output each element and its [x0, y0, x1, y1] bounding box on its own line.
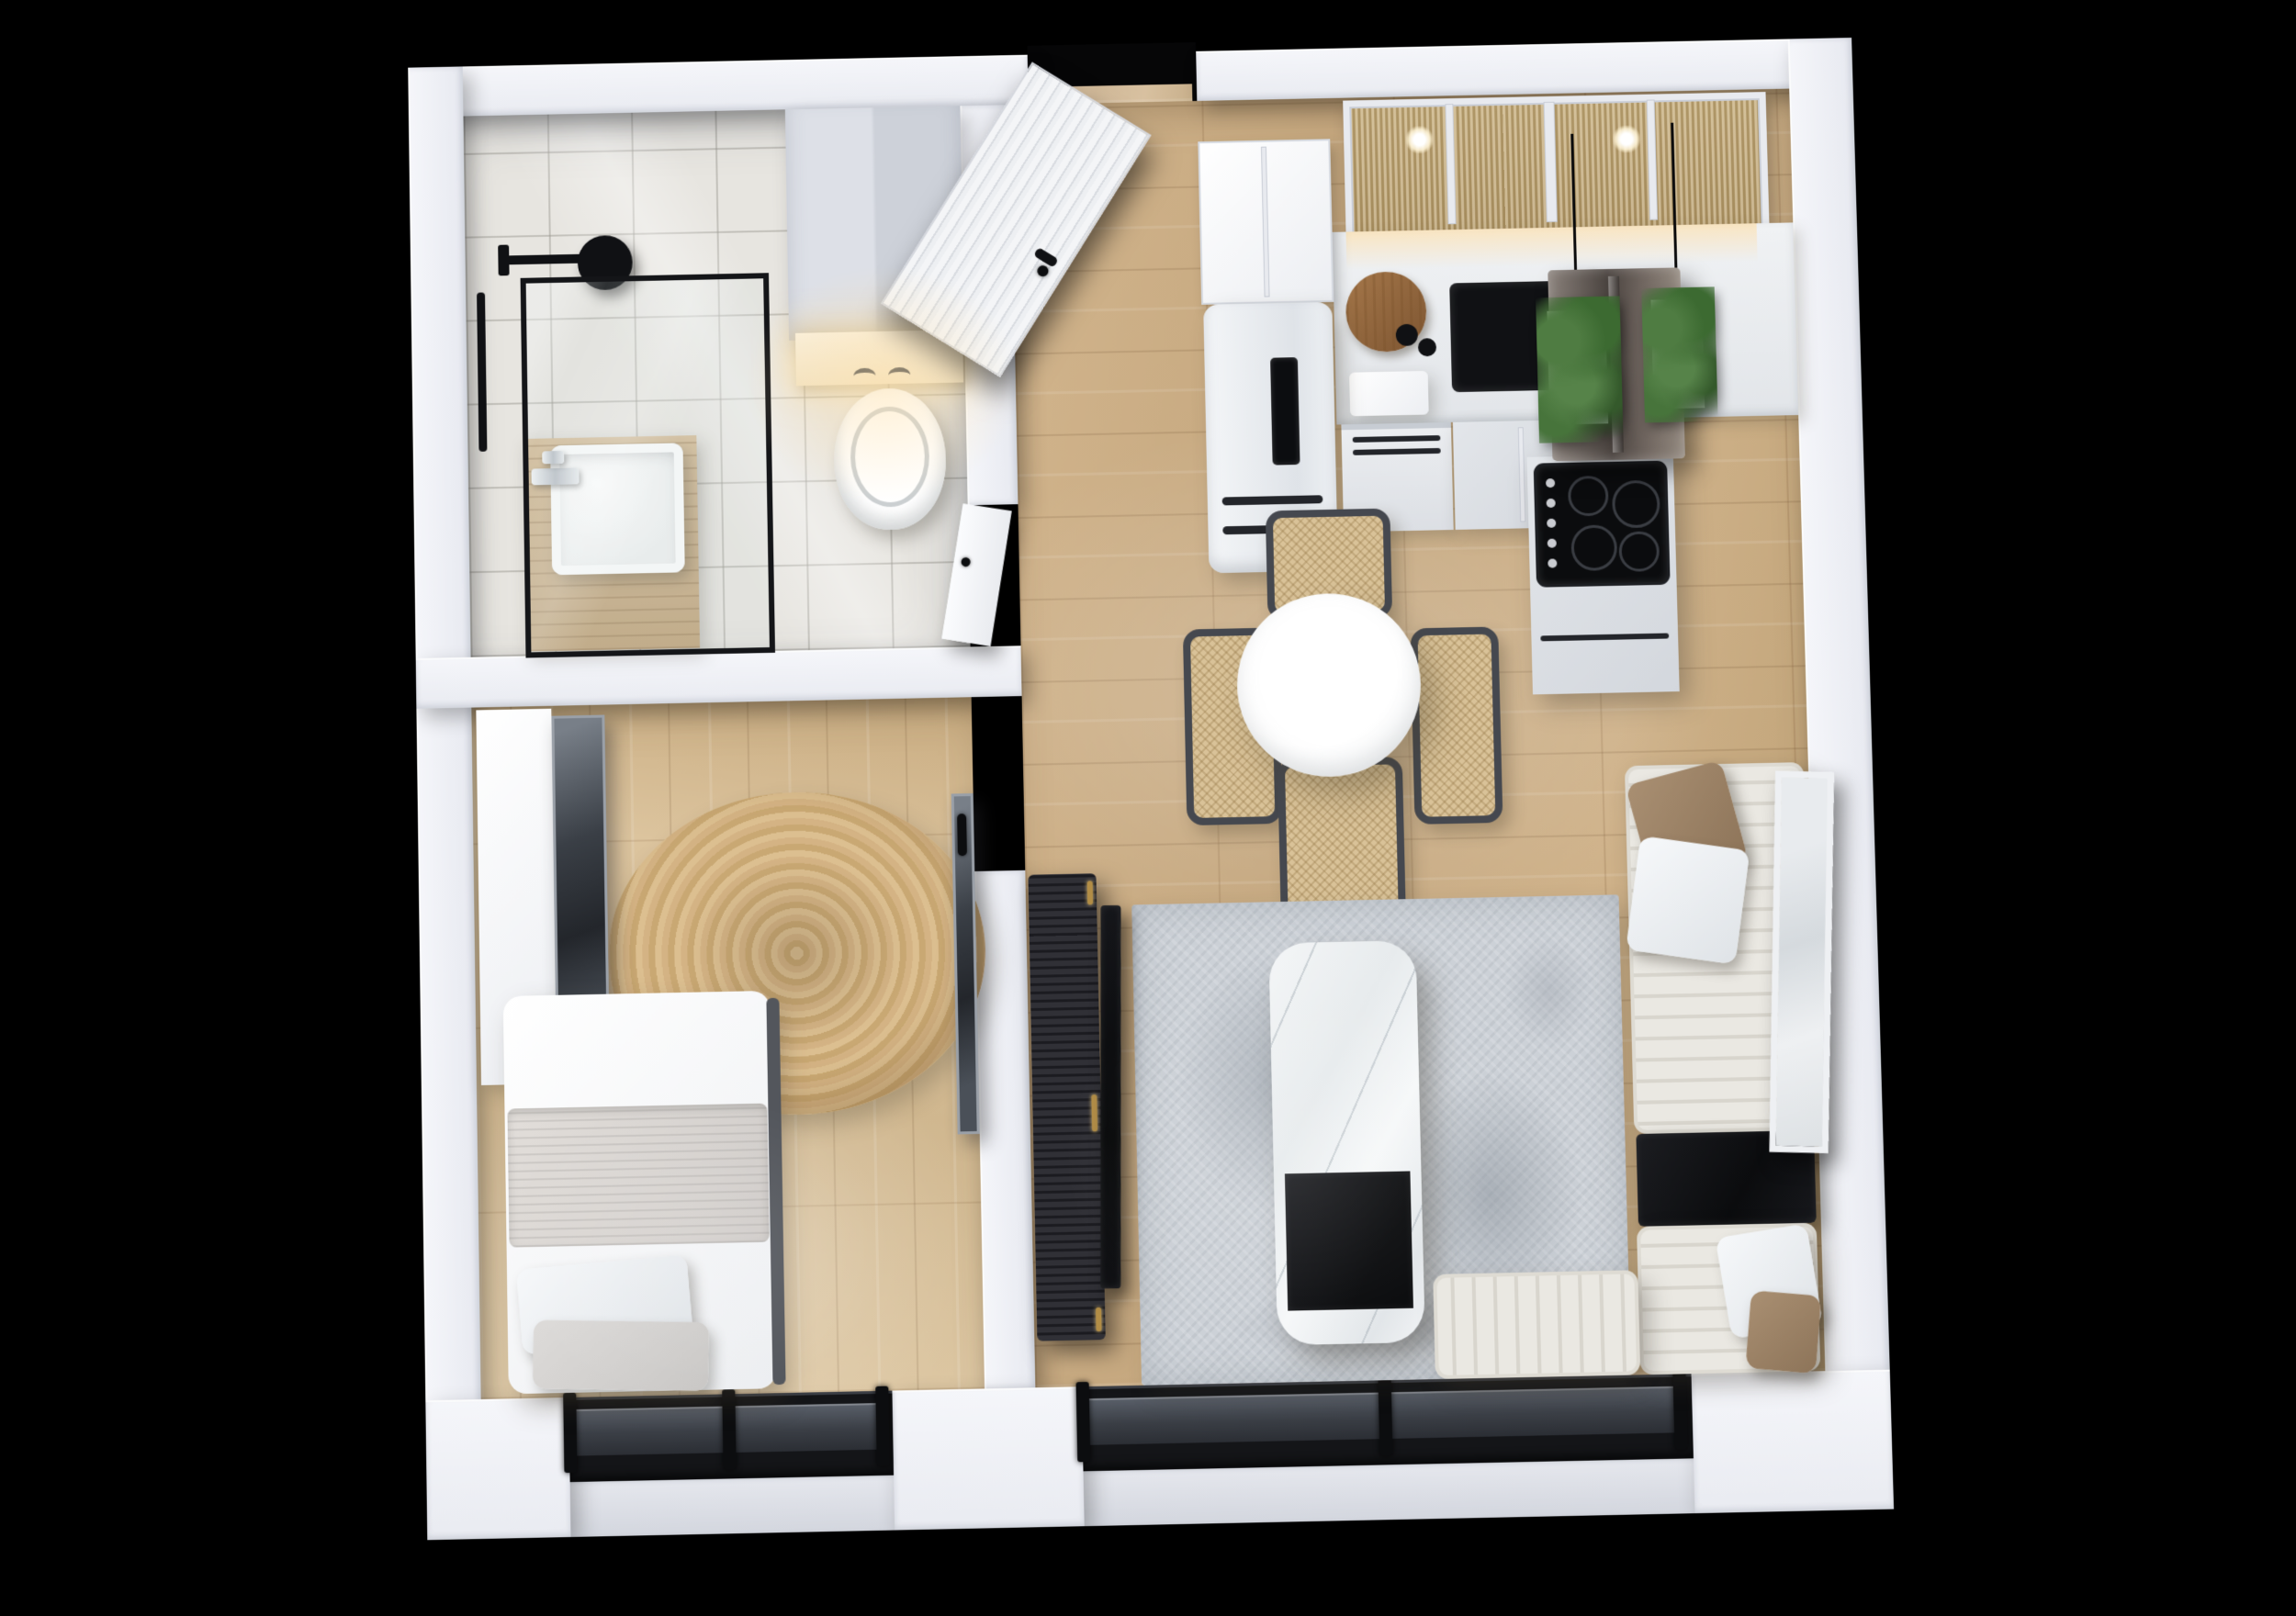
- oven-door-line: [1540, 634, 1669, 642]
- bed-throw-blanket: [507, 1104, 769, 1248]
- coffee-table-shelf: [1285, 1171, 1413, 1310]
- window-post: [722, 1389, 737, 1469]
- shower-arm-plate: [498, 245, 509, 276]
- entry-door-handle: [1033, 247, 1059, 268]
- fridge-control-panel: [1270, 357, 1300, 466]
- cooktop-knob: [1548, 539, 1557, 548]
- cooktop-knob: [1547, 499, 1556, 508]
- shower-arm: [506, 254, 587, 265]
- cabinet-frame-divider: [1262, 148, 1269, 297]
- sofa-pillow-taupe: [1746, 1290, 1822, 1374]
- shower-glass-screen: [521, 273, 775, 657]
- toilet-flush-buttons: [888, 367, 910, 383]
- dishwasher-vent: [1353, 435, 1441, 443]
- cooktop-knob: [1547, 519, 1556, 528]
- cabinet-over-fridge: [1198, 139, 1334, 305]
- cooktop-knob: [1548, 558, 1557, 567]
- entry-door-handle-rose: [1035, 264, 1050, 278]
- window-post: [875, 1386, 890, 1466]
- wall-south-corner-west: [425, 1397, 570, 1540]
- sofa-chaise-ottoman: [1433, 1270, 1640, 1379]
- sliding-door-handle: [957, 814, 967, 856]
- console-brass-accent: [1096, 1307, 1102, 1331]
- dishwasher-vent: [1353, 448, 1441, 455]
- burner: [1612, 480, 1660, 529]
- cabinet-frame-divider: [1446, 105, 1455, 223]
- fridge-handle: [1222, 495, 1323, 505]
- kitchen-upper-glass-cabinets: [1343, 92, 1770, 244]
- sofa-pillow-white: [1626, 836, 1750, 964]
- cabinet-frame-divider: [1545, 103, 1557, 221]
- induction-cooktop: [1536, 464, 1668, 585]
- console-brass-accent: [1087, 881, 1094, 904]
- burner: [1618, 531, 1660, 572]
- cabinet-frame-divider: [1648, 100, 1657, 219]
- framed-artwork: [1769, 771, 1834, 1154]
- render-canvas: [0, 0, 2296, 1616]
- door-handle: [961, 556, 971, 567]
- window-post: [563, 1393, 577, 1473]
- tv-console: [1028, 873, 1105, 1341]
- window-post: [1076, 1382, 1091, 1462]
- coffee-table: [1268, 940, 1425, 1345]
- planter-greenery: [1536, 296, 1624, 443]
- wall-south-corner-east: [1692, 1370, 1895, 1513]
- window-post: [1672, 1369, 1687, 1449]
- television: [1100, 905, 1120, 1288]
- bed-pillow-gray: [533, 1320, 710, 1392]
- burner: [1568, 476, 1609, 517]
- floor-plan: [0, 0, 2296, 1616]
- cabinet-frame-divider: [1519, 428, 1525, 521]
- window-post: [1378, 1375, 1392, 1455]
- cooktop-knob: [1546, 478, 1555, 488]
- wall-south-pier: [892, 1386, 1084, 1530]
- toilet-seat: [850, 406, 930, 508]
- serving-tray: [1349, 371, 1429, 416]
- console-brass-accent: [1091, 1094, 1097, 1131]
- dining-chair-east: [1410, 626, 1503, 824]
- burner: [1570, 524, 1617, 571]
- planter-greenery: [1641, 286, 1718, 422]
- toilet-flush-buttons: [853, 368, 875, 384]
